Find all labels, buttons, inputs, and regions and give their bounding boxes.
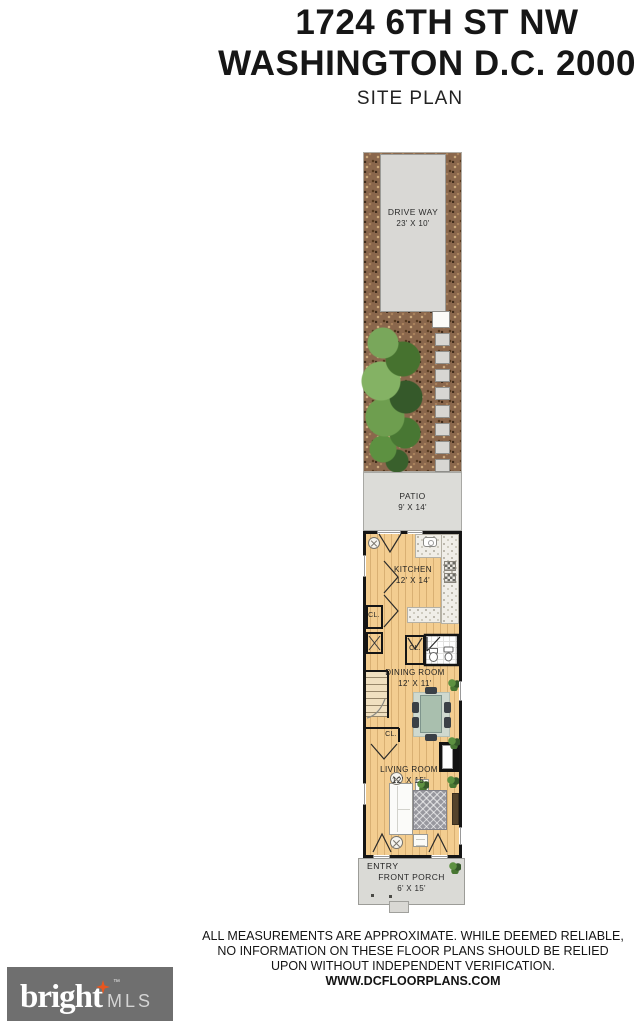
website: WWW.DCFLOORPLANS.COM xyxy=(202,974,624,989)
tree-icon xyxy=(361,325,433,473)
porch-post xyxy=(389,895,392,898)
front-porch-dims: 6' X 15' xyxy=(359,884,464,893)
driveway: DRIVE WAY 23' X 10' xyxy=(380,154,446,312)
stepping-stone xyxy=(435,459,450,472)
logo-brand: bright xyxy=(20,977,102,1017)
site-plan-page: 1724 6TH ST NW WASHINGTON D.C. 20001 SIT… xyxy=(0,0,636,1021)
disclaimer: ALL MEASUREMENTS ARE APPROXIMATE. WHILE … xyxy=(202,929,624,989)
closet-label: CL. xyxy=(381,731,401,739)
entry-label: ENTRY xyxy=(367,861,399,871)
living-room-dims: 12' X 15' xyxy=(379,776,439,786)
patio-label: PATIO xyxy=(364,491,461,501)
stepping-stone xyxy=(435,351,450,364)
stepping-stones xyxy=(432,311,450,472)
front-porch: ENTRY FRONT PORCH 6' X 15' xyxy=(358,858,465,905)
toilet-icon xyxy=(430,649,438,662)
logo-trademark: ™ xyxy=(113,979,120,986)
stepping-stone xyxy=(432,311,450,328)
disclaimer-line: UPON WITHOUT INDEPENDENT VERIFICATION. xyxy=(202,959,624,974)
floor-plan: DRIVE WAY 23' X 10' PATIO 9' X 14' xyxy=(363,152,462,922)
plant-icon xyxy=(449,862,461,874)
logo-suffix: MLS xyxy=(107,991,153,1012)
stepping-stone xyxy=(435,387,450,400)
patio: PATIO 9' X 14' xyxy=(363,472,462,531)
disclaimer-line: NO INFORMATION ON THESE FLOOR PLANS SHOU… xyxy=(202,944,624,959)
porch-post xyxy=(371,894,374,897)
closet-label: CL. xyxy=(364,612,384,620)
stepping-stone xyxy=(435,441,450,454)
porch-step xyxy=(389,901,409,913)
address-line2: WASHINGTON D.C. 20001 xyxy=(218,43,636,84)
closet-label: CL. xyxy=(405,645,425,653)
logo-star-icon xyxy=(96,980,110,994)
rear-yard: DRIVE WAY 23' X 10' xyxy=(363,152,462,472)
stepping-stone xyxy=(435,369,450,382)
plan-subtitle: SITE PLAN xyxy=(357,88,463,110)
brightmls-logo: bright ™ MLS xyxy=(7,967,173,1021)
patio-dims: 9' X 14' xyxy=(364,503,461,512)
stepping-stone xyxy=(435,423,450,436)
stepping-stone xyxy=(435,405,450,418)
house: KITCHEN 12' X 14' CL. CL. DINING ROOM 12… xyxy=(363,531,462,858)
driveway-dims: 23' X 10' xyxy=(381,219,445,228)
bath-sink-icon xyxy=(444,647,453,661)
disclaimer-line: ALL MEASUREMENTS ARE APPROXIMATE. WHILE … xyxy=(202,929,624,944)
stepping-stone xyxy=(435,333,450,346)
page-title: 1724 6TH ST NW WASHINGTON D.C. 20001 xyxy=(218,2,636,84)
dining-room-dims: 12' X 11' xyxy=(384,679,446,689)
address-line1: 1724 6TH ST NW xyxy=(218,2,636,43)
kitchen-label: KITCHEN xyxy=(383,565,443,575)
driveway-label: DRIVE WAY xyxy=(381,207,445,217)
dining-room-label: DINING ROOM xyxy=(384,668,446,678)
living-room-label: LIVING ROOM xyxy=(379,765,439,775)
kitchen-dims: 12' X 14' xyxy=(383,576,443,586)
